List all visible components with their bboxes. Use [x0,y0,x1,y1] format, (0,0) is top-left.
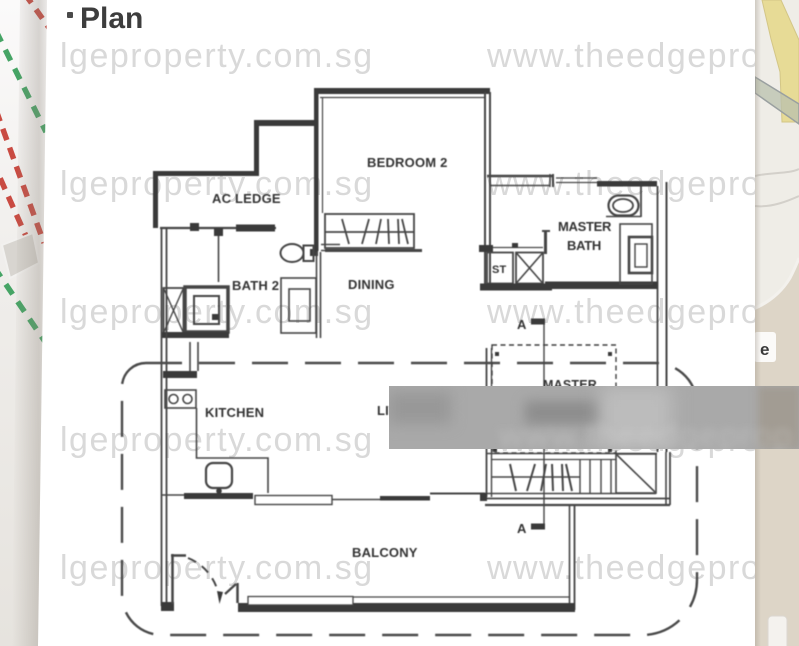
svg-text:A: A [517,317,527,332]
svg-text:ST: ST [492,264,507,276]
svg-text:BALCONY: BALCONY [352,545,418,560]
svg-text:BEDROOM 2: BEDROOM 2 [367,155,448,170]
svg-text:A: A [517,521,527,536]
svg-text:DINING: DINING [348,277,395,292]
svg-text:e: e [760,340,769,359]
svg-text:AC LEDGE: AC LEDGE [212,191,281,206]
svg-text:KITCHEN: KITCHEN [205,405,264,420]
svg-text:BATH 2: BATH 2 [232,278,279,293]
svg-text:MASTER: MASTER [558,219,612,234]
svg-text:BATH: BATH [567,238,601,253]
